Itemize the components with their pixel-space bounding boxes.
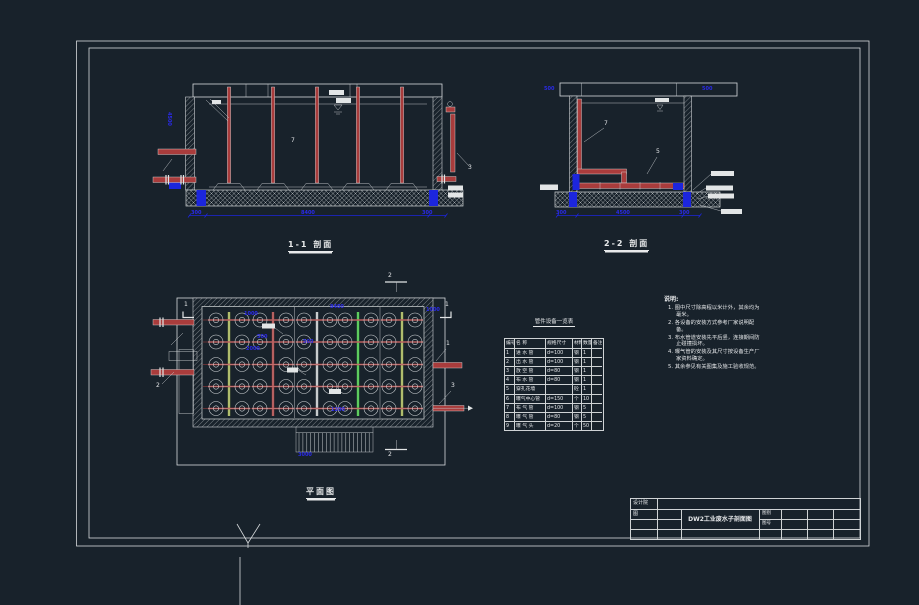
cell-qty: 1 bbox=[582, 366, 592, 375]
cell-no: 3 bbox=[505, 366, 515, 375]
table-row: 9 曝 气 头 d=20 个 50 bbox=[505, 421, 603, 430]
leader-label: 7 bbox=[291, 137, 295, 144]
cell-name: 进 水 管 bbox=[515, 348, 546, 357]
dim-label: 300 bbox=[679, 210, 689, 216]
dim-label: 3000 bbox=[298, 452, 312, 458]
section-2-2 bbox=[540, 83, 742, 218]
section-1-1 bbox=[153, 84, 469, 218]
cell-remark bbox=[592, 357, 602, 366]
caption-section-2-2: 2-2 剖面 bbox=[604, 238, 649, 251]
air-channel bbox=[296, 427, 373, 452]
parts-table-title: 管件设备一览表 bbox=[533, 317, 576, 327]
water-level-symbol bbox=[329, 90, 351, 114]
cell-no: 2 bbox=[505, 357, 515, 366]
notes-block: 说明: 图中尺寸除高程以米计外，其余均为毫米。各设备的安装方式参考厂家说明配备。… bbox=[664, 294, 762, 371]
dim-label: 8400 bbox=[330, 304, 344, 310]
cell-name: 曝气中心管 bbox=[515, 394, 546, 403]
cell-name: 出 水 管 bbox=[515, 357, 546, 366]
cell-remark bbox=[592, 421, 602, 430]
cell-remark bbox=[592, 412, 602, 421]
cell-spec: d=20 bbox=[546, 421, 573, 430]
table-row: 5 穿孔花墙 砼 1 bbox=[505, 384, 603, 393]
dim-label: 300 bbox=[422, 210, 432, 216]
cell-spec bbox=[546, 384, 573, 393]
cell-material: 个 bbox=[573, 394, 582, 403]
plan-view bbox=[151, 282, 473, 465]
cell-name: 布 气 管 bbox=[515, 403, 546, 412]
cut-mark-label: 1 bbox=[445, 301, 449, 308]
dim-label: 500 bbox=[257, 334, 267, 340]
cell-name: 曝 气 头 bbox=[515, 421, 546, 430]
parts-table: 管件设备一览表 编号 名 称 规格尺寸 材料 数量 备注 1 进 水 管 d=1… bbox=[504, 317, 604, 431]
title-block-drawing-title: DW2工业废水子剖面图 bbox=[681, 514, 759, 523]
col-header: 编号 bbox=[505, 339, 515, 348]
table-row: 7 布 气 管 d=100 钢 5 bbox=[505, 403, 603, 412]
dim-label: 500 bbox=[702, 86, 712, 92]
cell-qty: 10 bbox=[582, 394, 592, 403]
cell-material: 钢 bbox=[573, 403, 582, 412]
table-row: 6 曝气中心管 d=150 个 10 bbox=[505, 394, 603, 403]
cell-material: 钢 bbox=[573, 412, 582, 421]
note-item: 曝气管的安装及其尺寸按设备生产厂家资料确定。 bbox=[668, 349, 762, 363]
dim-label: 1200 bbox=[331, 407, 345, 413]
cell-qty: 1 bbox=[582, 357, 592, 366]
cell-remark bbox=[592, 394, 602, 403]
col-header: 备注 bbox=[592, 339, 602, 348]
plan-outlet bbox=[433, 349, 473, 411]
title-block-sheet-label: 图别 bbox=[762, 512, 771, 517]
cell-no: 7 bbox=[505, 403, 515, 412]
notes-heading: 说明: bbox=[664, 294, 762, 303]
cell-qty: 5 bbox=[582, 412, 592, 421]
cell-spec: d=80 bbox=[546, 412, 573, 421]
col-header: 数量 bbox=[582, 339, 592, 348]
cell-remark bbox=[592, 366, 602, 375]
cell-material: 个 bbox=[573, 421, 582, 430]
note-item: 其余参见有关图集及施工验收规范。 bbox=[668, 364, 762, 371]
cell-no: 6 bbox=[505, 394, 515, 403]
cell-no: 1 bbox=[505, 348, 515, 357]
leader-label: 2 bbox=[156, 382, 160, 389]
table-row: 2 出 水 管 d=100 钢 1 bbox=[505, 357, 603, 366]
cell-material: 钢 bbox=[573, 375, 582, 384]
plan-inlet bbox=[151, 318, 197, 414]
water-level-symbol-2 bbox=[655, 98, 669, 111]
table-row: 3 放 空 管 d=80 钢 1 bbox=[505, 366, 603, 375]
caption-section-1-1: 1-1 剖面 bbox=[288, 239, 333, 252]
col-header: 规格尺寸 bbox=[546, 339, 573, 348]
note-item: 图中尺寸除高程以米计外，其余均为毫米。 bbox=[668, 305, 762, 319]
cell-spec: d=100 bbox=[546, 357, 573, 366]
dim-label: 4500 bbox=[616, 210, 630, 216]
drop-pipes bbox=[213, 87, 418, 190]
cut-mark-label: 2 bbox=[388, 451, 392, 458]
dim-label: 1000 bbox=[426, 307, 440, 313]
cad-canvas: 1-1 剖面 2-2 剖面 平面图 300 8400 300 4500 500 … bbox=[0, 0, 919, 605]
cell-qty: 5 bbox=[582, 403, 592, 412]
cell-spec: d=80 bbox=[546, 366, 573, 375]
cell-material: 钢 bbox=[573, 357, 582, 366]
cell-spec: d=100 bbox=[546, 403, 573, 412]
leader-label: 7 bbox=[604, 120, 608, 127]
cell-remark bbox=[592, 348, 602, 357]
dim-label: 1000 bbox=[244, 311, 258, 317]
parts-table-grid: 编号 名 称 规格尺寸 材料 数量 备注 1 进 水 管 d=100 钢 1 2… bbox=[504, 338, 604, 431]
air-pipes-s2 bbox=[573, 99, 685, 190]
dim-label: 500 bbox=[303, 339, 313, 345]
cell-material: 钢 bbox=[573, 366, 582, 375]
cell-qty: 1 bbox=[582, 348, 592, 357]
notes-list: 图中尺寸除高程以米计外，其余均为毫米。各设备的安装方式参考厂家说明配备。布水管道… bbox=[664, 305, 762, 371]
cell-remark bbox=[592, 403, 602, 412]
cut-mark-label: 1 bbox=[184, 301, 188, 308]
leader-label: 3 bbox=[468, 164, 472, 171]
cell-spec: d=100 bbox=[546, 348, 573, 357]
table-row: 4 布 水 管 d=80 钢 1 bbox=[505, 375, 603, 384]
caption-plan: 平面图 bbox=[306, 486, 336, 499]
dim-line-s1 bbox=[188, 214, 448, 218]
leader-label: 1 bbox=[446, 340, 450, 347]
cell-qty: 50 bbox=[582, 421, 592, 430]
parts-table-body: 1 进 水 管 d=100 钢 1 2 出 水 管 d=100 钢 1 3 放 … bbox=[505, 348, 603, 430]
cut-mark-label: 2 bbox=[388, 272, 392, 279]
title-block-org: 设计院 bbox=[633, 501, 648, 506]
dim-label: 8400 bbox=[301, 210, 315, 216]
note-item: 各设备的安装方式参考厂家说明配备。 bbox=[668, 320, 762, 334]
break-mark bbox=[237, 524, 260, 605]
cell-material: 砼 bbox=[573, 384, 582, 393]
cell-no: 5 bbox=[505, 384, 515, 393]
col-header: 名 称 bbox=[515, 339, 546, 348]
cell-spec: d=80 bbox=[546, 375, 573, 384]
cell-no: 4 bbox=[505, 375, 515, 384]
title-block: 设计院 图 DW2工业废水子剖面图 图别 图号 bbox=[630, 498, 861, 540]
table-row: 8 曝 气 管 d=80 钢 5 bbox=[505, 412, 603, 421]
table-row: 1 进 水 管 d=100 钢 1 bbox=[505, 348, 603, 357]
cell-no: 9 bbox=[505, 421, 515, 430]
dim-label: 300 bbox=[556, 210, 566, 216]
cell-remark bbox=[592, 384, 602, 393]
cell-spec: d=150 bbox=[546, 394, 573, 403]
note-item: 布水管道安装先平后竖，连接期间防止碰撞损坏。 bbox=[668, 335, 762, 349]
parts-table-header-row: 编号 名 称 规格尺寸 材料 数量 备注 bbox=[505, 339, 603, 348]
dim-label: 300 bbox=[191, 210, 201, 216]
dim-label-vertical: 4500 bbox=[166, 112, 172, 126]
cell-name: 曝 气 管 bbox=[515, 412, 546, 421]
title-block-col-label: 图 bbox=[633, 512, 638, 517]
dim-label: 2000 bbox=[246, 346, 260, 352]
leader-label: 5 bbox=[656, 148, 660, 155]
cell-name: 放 空 管 bbox=[515, 366, 546, 375]
cell-qty: 1 bbox=[582, 375, 592, 384]
cell-name: 布 水 管 bbox=[515, 375, 546, 384]
dim-label: 500 bbox=[544, 86, 554, 92]
title-block-no-label: 图号 bbox=[762, 522, 771, 527]
cell-material: 钢 bbox=[573, 348, 582, 357]
leader-label: 3 bbox=[451, 382, 455, 389]
cell-name: 穿孔花墙 bbox=[515, 384, 546, 393]
cell-no: 8 bbox=[505, 412, 515, 421]
cell-remark bbox=[592, 375, 602, 384]
cell-qty: 1 bbox=[582, 384, 592, 393]
col-header: 材料 bbox=[573, 339, 582, 348]
